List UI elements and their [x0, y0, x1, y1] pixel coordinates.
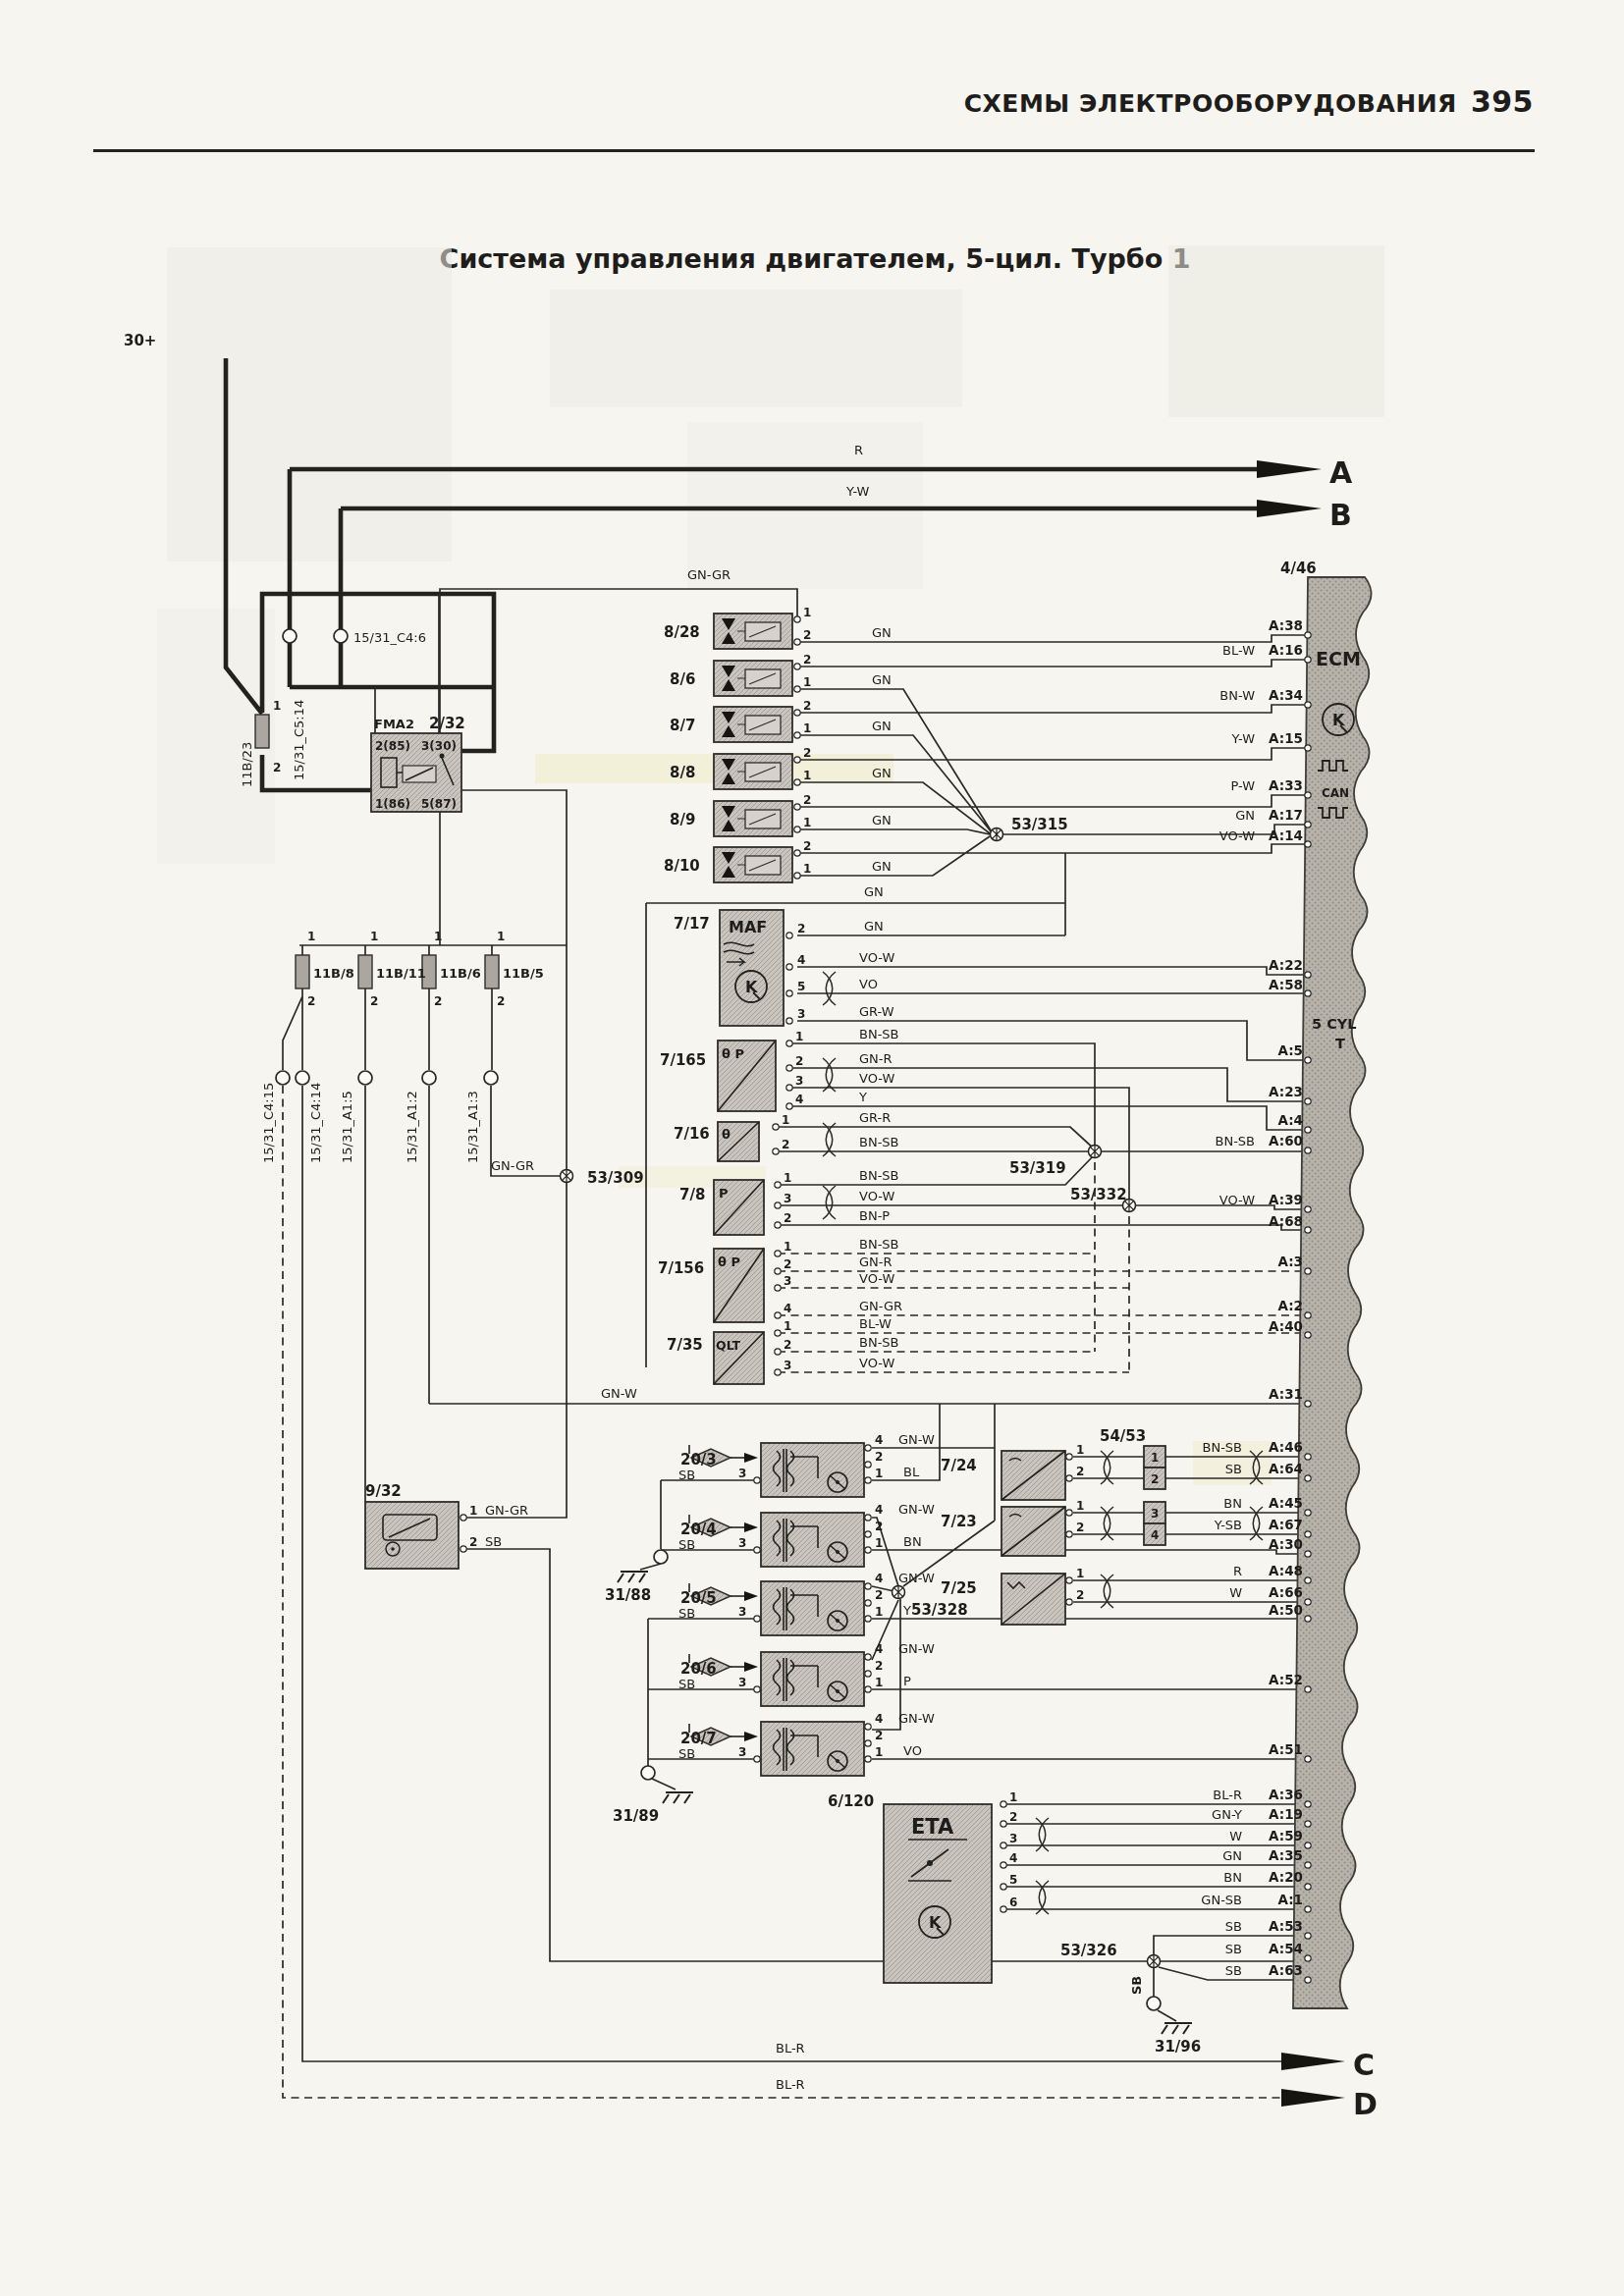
- pin-number: 1: [803, 862, 811, 876]
- ecm-pin-id: A:58: [1269, 977, 1303, 992]
- pin-number: 3: [784, 1192, 791, 1205]
- wire-label: GN: [872, 766, 892, 780]
- ecm-pin-id: A:51: [1269, 1741, 1303, 1757]
- connector-id: 15/31_A1:2: [405, 1091, 419, 1163]
- ecm-name: ECM: [1316, 648, 1361, 669]
- pin-number: 2: [784, 1338, 791, 1352]
- wire-label: GN-GR: [859, 1299, 902, 1313]
- pin-number: 3: [795, 1074, 803, 1088]
- pin-number: 2: [875, 1729, 883, 1742]
- pin-number: 1: [1009, 1790, 1017, 1804]
- component-symbol: θ P: [722, 1046, 744, 1061]
- component-name: MAF: [729, 918, 767, 936]
- ecm-pin-id: A:22: [1269, 957, 1303, 973]
- maf-sensor: 7/17 MAF 2 4 5 3 GN GN VO-W VO GR-W: [674, 884, 894, 1026]
- wire-label: GN: [872, 859, 892, 874]
- resistor-box-932: 9/32 1 GN-GR 2 SB: [365, 1482, 528, 1569]
- relay-pin: 5(87): [421, 797, 457, 811]
- junction-id: 53/326: [1060, 1942, 1117, 1959]
- ecm-pin-id: A:36: [1269, 1787, 1303, 1802]
- component-id: 20/6: [680, 1660, 717, 1678]
- wire-label: BN-SB: [859, 1135, 899, 1149]
- ecm-pin-id: A:64: [1269, 1461, 1303, 1476]
- wire-label: SB: [1129, 1976, 1144, 1995]
- pin-number: 1: [875, 1745, 883, 1759]
- pin-number: 1: [803, 606, 811, 619]
- ecm-cyl-label2: T: [1335, 1036, 1345, 1051]
- wire-label: SB: [678, 1468, 695, 1482]
- connector-cell: 1: [1151, 1451, 1159, 1465]
- arrow-a-label: A: [1329, 455, 1353, 490]
- wire-label: BN-SB: [859, 1237, 899, 1252]
- component-id: 7/17: [674, 915, 710, 933]
- wire-label: BN-SB: [859, 1027, 899, 1041]
- component-symbol: P: [719, 1186, 729, 1201]
- pin-number: 2: [273, 761, 281, 774]
- wire-label: GN-W: [898, 1502, 935, 1517]
- ecm-pins: A:38 A:16BL-W A:34BN-W A:15Y-W A:33P-W A…: [1201, 617, 1311, 1983]
- wire-label: SB: [678, 1537, 695, 1552]
- arrow-b-head: [1257, 500, 1322, 517]
- pin-number: 2: [803, 746, 811, 760]
- ecm-wire-label: BL-W: [1222, 643, 1255, 658]
- component-id: 8/28: [664, 623, 700, 641]
- pin-number: 2: [1076, 1521, 1084, 1534]
- arrow-d-head: [1281, 2089, 1345, 2107]
- ecm-pin-id: A:1: [1278, 1892, 1304, 1907]
- ecm-wire-label: P-W: [1230, 778, 1255, 793]
- temp-pressure-sensor-7156: 7/156 θ P 1 2 3 4 BN-SB GN-R VO-W GN-GR: [658, 1237, 902, 1322]
- ecm-pin-id: A:30: [1269, 1536, 1303, 1552]
- ecm-wire-label: R: [1233, 1564, 1242, 1578]
- connector-cell: 2: [1151, 1472, 1159, 1486]
- pin-number: 2: [803, 839, 811, 853]
- wire-label: GN-W: [898, 1641, 935, 1656]
- component-id: 7/25: [941, 1579, 977, 1597]
- component-name: ETA: [911, 1815, 954, 1839]
- ecm-wire-label: BN: [1223, 1870, 1242, 1885]
- ecm-cyl-label: 5 CYL: [1312, 1016, 1357, 1032]
- ecm-pin-id: A:2: [1278, 1298, 1304, 1313]
- pin-number: 1: [497, 930, 505, 943]
- wire-label: GN: [864, 884, 884, 899]
- pin-number: 2: [875, 1659, 883, 1673]
- pin-number: 2: [875, 1588, 883, 1602]
- ecm-wire-label: Y-W: [1231, 731, 1256, 746]
- oil-level-temp-sensor-735: 7/35 QLT 1 2 3 BL-W BN-SB VO-W: [667, 1316, 899, 1384]
- wire-label: VO-W: [859, 1071, 894, 1086]
- ecm-pin-id: A:17: [1269, 807, 1303, 823]
- wire-label: GR-R: [859, 1110, 891, 1125]
- connector-cell: 4: [1151, 1528, 1159, 1542]
- pin-number: 1: [273, 699, 281, 713]
- junction-id: 53/328: [911, 1601, 968, 1619]
- wire-label: BL-R: [776, 2041, 805, 2056]
- component-id: 7/24: [941, 1457, 977, 1474]
- pin-number: 1: [434, 930, 442, 943]
- ecm-wire-label: W: [1229, 1829, 1242, 1843]
- pin-number: 3: [797, 1007, 805, 1021]
- pin-number: 1: [875, 1536, 883, 1550]
- component-symbol: θ P: [718, 1255, 740, 1269]
- pin-number: 1: [1076, 1499, 1084, 1513]
- wire-label: VO-W: [859, 1356, 894, 1370]
- wire-label: GN: [872, 672, 892, 687]
- wire-label: Y-W: [845, 484, 870, 499]
- ecm-pin-id: A:31: [1269, 1386, 1303, 1402]
- component-symbol: QLT: [716, 1338, 741, 1353]
- ecm-wire-label: GN: [1235, 808, 1255, 823]
- ecm-pin-id: A:3: [1278, 1254, 1304, 1269]
- wire-label: GN-R: [859, 1051, 893, 1066]
- pin-number: 2: [803, 699, 811, 713]
- ecm-pin-id: A:16: [1269, 642, 1303, 658]
- pin-number: 4: [795, 1093, 803, 1106]
- component-id: 7/8: [679, 1186, 705, 1203]
- wire-label: GN-W: [898, 1711, 935, 1726]
- ecm-pin-id: A:48: [1269, 1563, 1303, 1578]
- pin-number: 2: [469, 1535, 477, 1549]
- wiring-diagram: K A B C D R Y-W BL-R BL-R 30+ FMA2 2/32 …: [0, 0, 1624, 2296]
- component-id: 7/35: [667, 1336, 703, 1354]
- component-id: 7/156: [658, 1259, 704, 1277]
- relay-id: 2/32: [429, 715, 465, 732]
- ecm-wire-label: VO-W: [1219, 1193, 1255, 1207]
- wire-label: R: [854, 443, 863, 457]
- pin-number: 1: [803, 816, 811, 829]
- wire-label: GN: [872, 625, 892, 640]
- wire-label: GN-GR: [491, 1158, 534, 1173]
- temp-pressure-sensor-7165: 7/165 θ P 1 2 3 4 BN-SB GN-R VO-W Y: [660, 1027, 899, 1111]
- ecm-pin-id: A:35: [1269, 1847, 1303, 1863]
- pin-number: 1: [307, 930, 315, 943]
- pin-number: 1: [469, 1504, 477, 1518]
- pin-number: 3: [1009, 1832, 1017, 1845]
- pin-number: 2: [795, 1054, 803, 1068]
- ecm-wire-label: GN-SB: [1201, 1893, 1242, 1907]
- pin-number: 2: [782, 1138, 789, 1151]
- connector-cell: 3: [1151, 1507, 1159, 1521]
- temp-sensor-716: 7/16 θ 1 2 GR-R BN-SB: [674, 1110, 899, 1161]
- arrow-d-label: D: [1353, 2087, 1378, 2121]
- pin-number: 1: [803, 721, 811, 735]
- wire-label: Y: [902, 1603, 911, 1618]
- wire-label: GN-W: [898, 1432, 935, 1447]
- pin-number: 3: [738, 1605, 746, 1619]
- component-id: 20/5: [680, 1589, 717, 1607]
- connector-id: 54/53: [1100, 1427, 1146, 1445]
- ecm-wire-label: GN-Y: [1212, 1807, 1242, 1822]
- ecm-wire-label: BL-R: [1213, 1788, 1242, 1802]
- ecm-pin-id: A:40: [1269, 1318, 1303, 1334]
- wire-label: GN: [864, 919, 884, 934]
- connector-id: 15/31_C4:14: [308, 1083, 323, 1163]
- ecm-pin-id: A:46: [1269, 1439, 1303, 1455]
- ecm-pin-id: A:19: [1269, 1806, 1303, 1822]
- wire-label: VO: [903, 1743, 922, 1758]
- ecm-wire-label: SB: [1225, 1919, 1242, 1934]
- wire-label: BN-SB: [859, 1168, 899, 1183]
- connector-id: 15/31_A1:5: [340, 1091, 354, 1163]
- pin-number: 1: [370, 930, 378, 943]
- pin-number: 1: [803, 675, 811, 689]
- component-id: 20/3: [680, 1451, 717, 1468]
- ecm-pin-id: A:33: [1269, 777, 1303, 793]
- wire-label: Y: [858, 1090, 867, 1104]
- pin-number: 2: [875, 1520, 883, 1533]
- ecm-pin-id: A:39: [1269, 1192, 1303, 1207]
- ecm-connector-id: 4/46: [1280, 560, 1317, 577]
- component-id: 7/23: [941, 1513, 977, 1530]
- ecm-pin-id: A:20: [1269, 1869, 1303, 1885]
- component-id: 7/16: [674, 1125, 710, 1143]
- pin-number: 1: [795, 1030, 803, 1043]
- component-symbol: θ: [722, 1127, 731, 1142]
- relay-fma2: FMA2 2/32 2(85) 3(30) 1(86) 5(87): [371, 715, 465, 812]
- relay-name: FMA2: [374, 717, 414, 731]
- pin-number: 1: [1076, 1567, 1084, 1580]
- wire-label: P: [903, 1674, 911, 1688]
- ecm-pin-id: A:54: [1269, 1941, 1303, 1956]
- pin-number: 3: [738, 1745, 746, 1759]
- ecm-pin-id: A:50: [1269, 1602, 1303, 1618]
- pin-number: 2: [434, 994, 442, 1008]
- wire-label: SB: [678, 1746, 695, 1761]
- mid-connectors: 15/31_C4:15 15/31_C4:14 15/31_A1:5 15/31…: [261, 1071, 498, 1163]
- ecm-wire-label: W: [1229, 1585, 1242, 1600]
- wire-label: BL-W: [859, 1316, 892, 1331]
- ecm-wire-label: SB: [1225, 1462, 1242, 1476]
- pin-number: 5: [1009, 1873, 1017, 1887]
- ecm-wire-label: BN: [1223, 1496, 1242, 1511]
- ecm-pin-id: A:67: [1269, 1517, 1303, 1532]
- ecm-pin-id: A:15: [1269, 730, 1303, 746]
- component-id: 8/8: [670, 764, 695, 781]
- pin-number: 1: [803, 769, 811, 782]
- pin-number: 3: [738, 1536, 746, 1550]
- pin-number: 2: [803, 793, 811, 807]
- ecm-wire-label: BN-W: [1219, 688, 1255, 703]
- pin-number: 1: [875, 1676, 883, 1689]
- ecm-pin-id: A:4: [1278, 1112, 1304, 1128]
- wire-label: GN: [872, 719, 892, 733]
- arrow-b-label: B: [1329, 498, 1352, 532]
- wire-label: SB: [678, 1606, 695, 1621]
- pin-number: 1: [784, 1319, 791, 1333]
- wire-label: BN: [903, 1534, 922, 1549]
- component-id: 20/4: [680, 1521, 717, 1538]
- power-30-label: 30+: [124, 332, 156, 349]
- relay-pin: 3(30): [421, 739, 457, 753]
- ecm-wire-label: GN: [1222, 1848, 1242, 1863]
- pin-number: 4: [875, 1642, 883, 1656]
- fuse-id: 11B/5: [503, 966, 544, 981]
- can-label: CAN: [1322, 786, 1349, 800]
- pin-number: 2: [797, 922, 805, 935]
- ecm-pin-id: A:68: [1269, 1213, 1303, 1229]
- connector-id: 15/31_C4:15: [261, 1083, 276, 1163]
- junction-id: 53/315: [1011, 816, 1068, 833]
- pin-number: 3: [784, 1274, 791, 1288]
- pin-number: 2: [307, 994, 315, 1008]
- fuse-bus: 1 1 1 1 2 2 2 2 11B/8 11B/11 11B/6 11B/5: [296, 930, 544, 1008]
- component-id: 20/7: [680, 1730, 717, 1747]
- pin-number: 1: [875, 1605, 883, 1619]
- ecm-pin-id: A:23: [1269, 1084, 1303, 1099]
- ground-id: 31/88: [605, 1586, 651, 1604]
- ecm-pin-id: A:53: [1269, 1918, 1303, 1934]
- wire-label: GN-R: [859, 1255, 893, 1269]
- relay-pin: 2(85): [375, 739, 410, 753]
- ecm-wire-label: SB: [1225, 1963, 1242, 1978]
- pin-number: 1: [784, 1240, 791, 1254]
- pin-number: 4: [875, 1503, 883, 1517]
- ecm-wire-label: BN-SB: [1202, 1440, 1242, 1455]
- ground-id: 31/89: [613, 1807, 659, 1825]
- ecm-wire-label: Y-SB: [1214, 1518, 1242, 1532]
- ecm-wire-label: BN-SB: [1215, 1134, 1255, 1148]
- wire-label: SB: [678, 1677, 695, 1691]
- fuse-id: 11B/8: [313, 966, 354, 981]
- arrow-c-label: C: [1353, 2048, 1375, 2082]
- ecm-pin-id: A:66: [1269, 1584, 1303, 1600]
- fuse-id: 11B/11: [376, 966, 426, 981]
- pin-number: 1: [782, 1113, 789, 1127]
- ecm-wire-label: SB: [1225, 1942, 1242, 1956]
- ecm-pin-id: A:14: [1269, 828, 1303, 843]
- pin-number: 4: [875, 1433, 883, 1447]
- ecm-pin-id: A:59: [1269, 1828, 1303, 1843]
- connector-id: 15/31_C5:14: [292, 700, 306, 780]
- pin-number: 4: [1009, 1851, 1017, 1865]
- ecm-pin-id: A:34: [1269, 687, 1303, 703]
- junction-id: 53/332: [1070, 1186, 1127, 1203]
- pin-number: 5: [797, 980, 805, 993]
- ecm-pin-id: A:52: [1269, 1672, 1303, 1687]
- ecm-wire-label: VO-W: [1219, 828, 1255, 843]
- pin-number: 3: [784, 1359, 791, 1372]
- wire-label: VO-W: [859, 1189, 894, 1203]
- pin-number: 2: [784, 1211, 791, 1225]
- pin-number: 1: [875, 1467, 883, 1480]
- wire-label: GN: [872, 813, 892, 828]
- ecm-pin-id: A:63: [1269, 1962, 1303, 1978]
- connector-id: 15/31_A1:3: [465, 1091, 480, 1163]
- scanned-wiring-diagram-page: { "page":{"header":"СХЕМЫ ЭЛЕКТРООБОРУДО…: [0, 0, 1624, 2296]
- wire-label: BN-P: [859, 1208, 890, 1223]
- pin-number: 4: [784, 1302, 791, 1315]
- wire-label: BL: [903, 1465, 920, 1479]
- arrow-a-head: [1257, 460, 1322, 478]
- pin-number: 6: [1009, 1896, 1017, 1909]
- ecm-pin-id: A:60: [1269, 1133, 1303, 1148]
- ecm-pin-id: A:38: [1269, 617, 1303, 633]
- wire-label: GN-GR: [485, 1503, 528, 1518]
- pin-number: 3: [738, 1676, 746, 1689]
- fuse-id: 11B/6: [440, 966, 481, 981]
- pin-number: 2: [875, 1450, 883, 1464]
- component-id: 8/6: [670, 670, 695, 688]
- component-id: 7/165: [660, 1051, 706, 1069]
- injector-group: GN-GR 8/28 8/6 8/7 8/8 8/9 8/10 1 2 2 1 …: [664, 567, 892, 882]
- pin-number: 1: [1076, 1443, 1084, 1457]
- wire-label: GN-GR: [687, 567, 731, 582]
- ecm-pin-id: A:45: [1269, 1495, 1303, 1511]
- pin-number: 2: [803, 653, 811, 667]
- arrow-c-head: [1281, 2053, 1345, 2070]
- junction-id: 53/309: [587, 1169, 644, 1187]
- ecm-pin-id: A:5: [1278, 1042, 1304, 1058]
- pin-number: 1: [784, 1171, 791, 1185]
- pin-number: 2: [1076, 1465, 1084, 1478]
- pin-number: 2: [1076, 1588, 1084, 1602]
- pin-number: 3: [738, 1467, 746, 1480]
- junction-id: 53/319: [1009, 1159, 1066, 1177]
- wire-label: GN-W: [601, 1386, 637, 1401]
- ground-id: 31/96: [1155, 2038, 1201, 2056]
- component-id: 6/120: [828, 1792, 874, 1810]
- component-id: 8/9: [670, 811, 695, 828]
- pin-number: 2: [370, 994, 378, 1008]
- pin-number: 2: [803, 628, 811, 642]
- component-id: 8/7: [670, 717, 695, 734]
- pin-number: 2: [784, 1257, 791, 1271]
- pin-number: 4: [875, 1712, 883, 1726]
- wire-label: VO: [859, 977, 878, 991]
- pin-number: 2: [497, 994, 505, 1008]
- pin-number: 4: [875, 1572, 883, 1585]
- pin-number: 2: [1009, 1810, 1017, 1824]
- component-id: 9/32: [365, 1482, 402, 1500]
- wire-label: VO-W: [859, 1271, 894, 1286]
- connector-id: 15/31_C4:6: [353, 630, 426, 645]
- component-id: 8/10: [664, 857, 700, 875]
- relay-pin: 1(86): [375, 797, 410, 811]
- pin-number: 4: [797, 953, 805, 967]
- wire-label: BL-R: [776, 2077, 805, 2092]
- wire-label: GN-W: [898, 1571, 935, 1585]
- wire-label: BN-SB: [859, 1335, 899, 1350]
- wire-label: VO-W: [859, 950, 894, 965]
- fuse-id: 11B/23: [240, 742, 254, 787]
- wire-label: SB: [485, 1534, 502, 1549]
- wire-label: GR-W: [859, 1004, 894, 1019]
